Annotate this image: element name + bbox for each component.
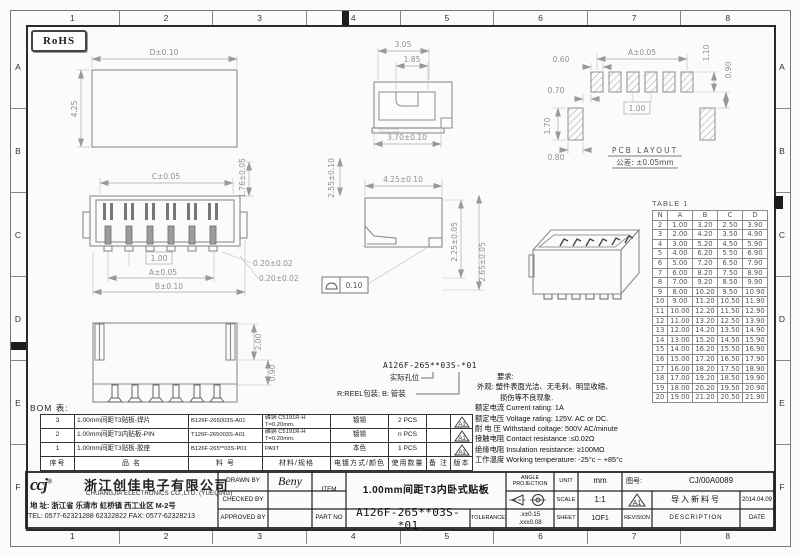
dim-pcb-1: 1.10 [702,44,711,61]
company-name-en: CHUANGJIA ELECTRONICS CO.,LTD. (YUEQING) [86,491,233,497]
notes-appearance-1: 外观: 塑件表面光洁、无毛刺、明显收缩、 [477,382,675,392]
company-address: 地 址: 浙江省 乐清市 虹桥镇 西工业区 M-2号 [30,500,176,511]
dim-pcb-pitch: 1.00 [629,104,646,113]
dimension-table-row: 1514.0016.2015.5016.90 [653,345,768,355]
revision-date: 2014.04.09 [740,491,774,509]
unit-label: UNIT [554,472,578,491]
dim-front-pitch: 1.00 [151,254,168,263]
dim-side-w: 4.25±0.10 [383,175,423,184]
dim-front-span: A±0.05 [149,268,177,277]
dimension-table-row: 65.007.206.507.90 [653,258,768,268]
approved-by-value [268,509,312,528]
bom-table: 3 1.00mm间距T3贴板-焊片 B126F-265003S-A01 磷铜 C… [40,414,473,471]
svg-text:A1: A1 [458,450,466,456]
dim-pcb-span: A±0.05 [628,48,656,57]
tolerance-label: TOLERANCE [470,509,506,528]
revision-triangle-icon: A1 [454,430,470,442]
bom-row: 1 1.00mm间距T3贴板-胶座 B126F-265**03S-P01 PA9… [41,443,473,457]
notes-block: 要求: 外观: 塑件表面光洁、无毛刺、明显收缩、 损伤等不良现象. 额定电流 C… [475,372,675,466]
part-no-value: A126F-265**03S-*01 [346,509,470,528]
revision-label: REVISION [622,509,652,528]
bom-header-row: 序号 品 名 料 号 材料/规格 电镀方式/颜色 使用数量 备 注 版本 [41,457,473,471]
svg-text:A1: A1 [458,436,466,442]
company-logo: ccj® [30,475,51,495]
plan-view: D±0.10 4.25 [70,48,237,147]
dimension-table-row: 76.008.207.508.90 [653,268,768,278]
part-code-leaders [416,372,459,394]
dim-pcb-4: 1.70 [543,117,552,134]
dimension-table-row: 32.004.203.504.90 [653,230,768,240]
part-code-note-packing: R:REEL包装; B: 管装 [337,389,406,399]
checked-by-value [268,491,312,509]
dim-front-right: 1.76±0.05 [238,158,247,198]
revision-triangle-icon: A1 [454,444,470,456]
angle-projection-label: ANGLE PROJECTION [506,472,554,491]
dimension-table-row: 21.003.202.503.90 [653,220,768,230]
tolerance-xx: .xx±0.08 [518,519,541,527]
dim-front-width: B±0.10 [155,282,183,291]
notes-spec-line: 绝缘电阻 Insulation resistance: ≥100MΩ [475,445,675,455]
scale-label: SCALE [554,491,578,509]
tolerance-values: .x±0.15 .xx±0.08 [506,509,554,528]
dim-front-pin1: 0.20±0.02 [253,259,293,268]
dim-side-flatness: 0.10 [346,281,363,290]
notes-spec-line: 额定电压 Voltage rating: 125V. AC or DC. [475,414,675,424]
part-code: A126F-265**03S-*01 [383,361,477,370]
sheet-label: SHEET [554,509,578,528]
dim-front-top: C±0.05 [152,172,180,181]
dim-pcb-2: 0.90 [724,61,733,78]
notes-spec-line: 耐 电 压 Withstand coltage: 500V AC/minute [475,424,675,434]
svg-text:A1: A1 [633,500,642,507]
drawn-by-label: DRAWN BY [218,472,268,491]
dimension-table-row: 43.005.204.505.90 [653,239,768,249]
drawing-no-label: 图号: [626,472,656,491]
item-label: ITEM [312,472,346,509]
pcb-layout-view: A±0.05 0.60 1.10 0.90 0.70 1.70 0.80 1.0… [543,44,733,168]
bom-row: 3 1.00mm间距T3贴板-焊片 B126F-265003S-A01 磷铜 C… [41,415,473,429]
bottom-view: 2.00 0.90 [93,323,277,402]
part-no-label: PART NO [312,509,346,528]
dim-bottom-2: 0.90 [268,364,277,381]
revision-symbol-cell: A1 [622,491,652,509]
dim-pcb-padw: 0.60 [553,55,570,64]
notes-appearance-2: 损伤等不良现象. [500,393,675,403]
scale-value: 1:1 [578,491,622,509]
pcb-layout-title: PCB LAYOUT [612,146,678,155]
sheet-value: 1OF1 [578,509,622,528]
dimension-table-row: 1615.0017.2016.5017.90 [653,354,768,364]
item-value: 1.00mm间距T3内卧式贴板 [346,472,506,509]
tolerance-x: .x±0.15 [520,511,540,519]
dimension-table-row: 1413.0015.2014.5015.90 [653,335,768,345]
dimension-table-header: N A B C D [653,211,768,221]
drawing-no-value: CJ/00A0089 [656,472,766,491]
revision-triangle-icon: A1 [628,493,646,507]
part-code-note-hole: 实际孔位 [390,373,419,383]
svg-text:A1: A1 [458,422,466,428]
registered-mark: ® [47,477,51,485]
revision-triangle-icon: A1 [454,416,470,428]
revision-description: 导入新料号 [652,491,740,509]
dimension-table-row: 98.0010.209.5010.90 [653,287,768,297]
dim-side-h: 2.55±0.10 [327,158,336,198]
company-tel: TEL: 0577-62321288 62322822 FAX: 0577-62… [28,513,195,520]
section-view: 3.05 1.85 3.70±0.10 [372,40,452,148]
dimension-table-row: 1312.0014.2013.5014.90 [653,326,768,336]
third-angle-projection-icon [509,495,546,506]
dim-pcb-3: 0.70 [548,86,565,95]
dimension-table-row: 87.009.208.509.90 [653,278,768,288]
dim-plan-height: 4.25 [70,100,79,117]
flatness-frame: 0.10 [322,277,368,293]
dim-section-2: 1.85 [404,55,421,64]
description-label: DESCRIPTION [652,509,740,528]
notes-spec-line: 工作温度 Working temperature: -25°c ~ +85°c [475,455,675,465]
dim-front-pin2: 0.20±0.02 [259,274,299,283]
dim-side-p2: 2.65±0.05 [478,242,487,282]
date-label: DATE [740,509,774,528]
dimension-table-row: 54.006.205.506.90 [653,249,768,259]
dim-pcb-5: 0.80 [548,153,565,162]
dim-section-1: 3.05 [395,40,412,49]
isometric-view [529,230,639,299]
dimension-table-row: 1211.0013.2012.5013.90 [653,316,768,326]
bom-row: 2 1.00mm间距T3内贴板-PIN T126F-265003S-A01 磷铜… [41,429,473,443]
dimension-table-row: 1110.0012.2011.5012.90 [653,306,768,316]
approved-by-label: APPROVED BY [218,509,268,528]
notes-spec-line: 接触电阻 Contact resistance :≤0.02Ω [475,434,675,444]
dim-bottom-1: 2.00 [254,333,263,350]
dimension-table-row: 109.0011.2010.5011.90 [653,297,768,307]
unit-value: mm [578,472,622,491]
side-view: 4.25±0.10 2.55±0.10 2.25±0.05 2.65±0.05 … [322,158,487,293]
pcb-layout-tolerance: 公差: ±0.05mm [616,157,674,167]
dim-plan-width: D±0.10 [150,48,179,57]
bom-label: BOM 表: [30,402,69,414]
dim-side-p1: 2.25±0.05 [450,222,459,262]
dim-section-3: 3.70±0.10 [387,133,427,142]
notes-spec-line: 额定电流 Current rating: 1A [475,403,675,413]
dimension-table-title: TABLE 1 [652,199,772,208]
notes-require: 要求: [497,372,675,382]
front-view: C±0.05 1.76±0.05 1.00 A±0.05 B±0.10 0.20… [83,158,299,296]
drawn-by-value: Beny [268,472,312,491]
checked-by-label: CHECKED BY [218,491,268,509]
